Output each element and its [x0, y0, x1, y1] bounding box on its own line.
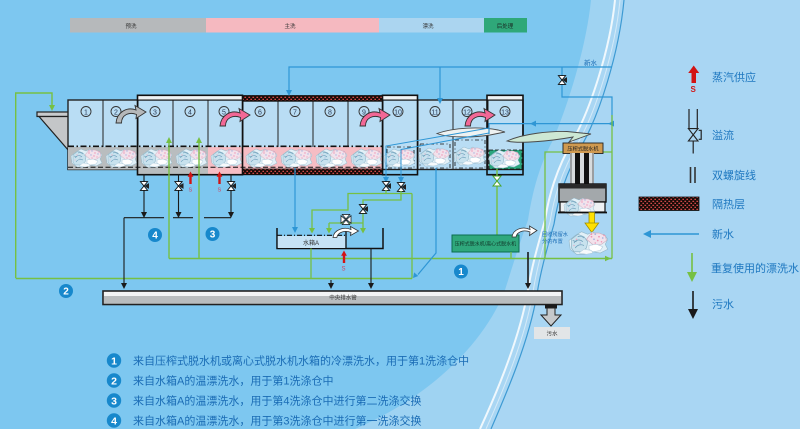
svg-text:水箱A: 水箱A: [303, 239, 319, 247]
svg-text:污水: 污水: [546, 330, 558, 338]
svg-text:双螺旋线: 双螺旋线: [712, 168, 756, 182]
svg-text:污水: 污水: [712, 298, 734, 311]
svg-text:S: S: [218, 188, 222, 194]
svg-text:S: S: [691, 85, 697, 94]
svg-text:4: 4: [188, 109, 192, 116]
svg-text:回收残留水: 回收残留水: [542, 230, 569, 238]
svg-text:1: 1: [111, 355, 117, 367]
svg-text:来自压榨式脱水机或离心式脱水机水箱的冷漂洗水，用于第1洗涤仓: 来自压榨式脱水机或离心式脱水机水箱的冷漂洗水，用于第1洗涤仓中: [133, 354, 469, 368]
svg-text:7: 7: [293, 109, 297, 116]
svg-text:来自水箱A的温漂洗水，用于第4洗涤仓中进行第二洗涤交换: 来自水箱A的温漂洗水，用于第4洗涤仓中进行第二洗涤交换: [133, 394, 421, 408]
svg-text:2: 2: [63, 287, 69, 298]
svg-text:3: 3: [111, 395, 117, 407]
svg-text:2: 2: [114, 109, 118, 116]
svg-text:S: S: [342, 267, 346, 273]
svg-text:4: 4: [111, 415, 117, 427]
svg-text:漂洗: 漂洗: [422, 22, 434, 30]
svg-text:4: 4: [152, 231, 158, 242]
svg-text:压榨式脱水机/离心式脱水机: 压榨式脱水机/离心式脱水机: [455, 241, 516, 248]
svg-text:溢流: 溢流: [712, 128, 734, 142]
svg-text:来自水箱A的温漂洗水，用于第1洗涤仓中: 来自水箱A的温漂洗水，用于第1洗涤仓中: [133, 374, 333, 388]
svg-text:6: 6: [258, 109, 262, 116]
svg-text:重复使用的漂洗水: 重复使用的漂洗水: [711, 261, 799, 275]
svg-text:S: S: [189, 188, 193, 194]
svg-text:1: 1: [458, 267, 464, 278]
svg-text:3: 3: [210, 230, 216, 241]
svg-text:新水: 新水: [712, 227, 734, 241]
svg-text:后处理: 后处理: [497, 22, 514, 30]
svg-text:新水: 新水: [584, 58, 598, 67]
svg-text:预洗: 预洗: [125, 22, 137, 30]
svg-text:3: 3: [153, 109, 157, 116]
svg-text:2: 2: [111, 375, 117, 387]
svg-text:蒸汽供应: 蒸汽供应: [712, 70, 756, 84]
svg-text:来自水箱A的温漂洗水，用于第3洗涤仓中进行第一洗涤交换: 来自水箱A的温漂洗水，用于第3洗涤仓中进行第一洗涤交换: [133, 414, 421, 428]
svg-text:分的布置: 分的布置: [542, 237, 563, 245]
svg-text:中央排水管: 中央排水管: [329, 294, 357, 302]
svg-text:主洗: 主洗: [284, 22, 296, 30]
svg-text:8: 8: [328, 109, 332, 116]
svg-text:隔热层: 隔热层: [712, 198, 745, 211]
svg-text:10: 10: [394, 109, 402, 116]
svg-text:13: 13: [501, 109, 509, 116]
svg-text:压榨式脱水机: 压榨式脱水机: [567, 145, 599, 153]
svg-text:11: 11: [431, 109, 438, 116]
svg-text:1: 1: [84, 109, 88, 116]
